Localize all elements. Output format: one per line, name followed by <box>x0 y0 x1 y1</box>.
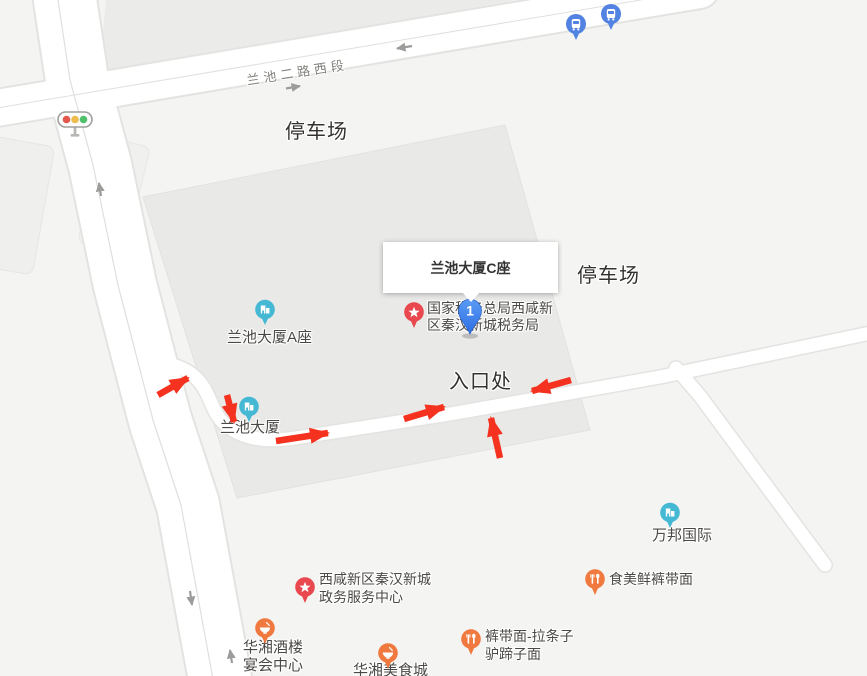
kudaimian-label[interactable]: 裤带面-拉条子 驴蹄子面 <box>485 627 574 663</box>
parking-label-top: 停车场 <box>285 120 348 144</box>
gov-center-label[interactable]: 西咸新区秦汉新城 政务服务中心 <box>319 570 431 606</box>
gov-center-label-line1: 西咸新区秦汉新城 <box>319 570 431 588</box>
shimei-fork-knife-pin-icon[interactable] <box>584 568 606 601</box>
tax-office-star-pin-icon[interactable] <box>403 301 425 334</box>
gov-center-label-line2: 政务服务中心 <box>319 588 431 606</box>
parcel-left <box>0 134 55 275</box>
bus-stop-icon[interactable] <box>565 13 587 46</box>
huaxiang-hotel-label-line2: 宴会中心 <box>243 657 303 675</box>
bus-stop-icon[interactable] <box>600 3 622 36</box>
traffic-light-icon <box>55 108 95 145</box>
popup-card[interactable]: 兰池大厦C座 <box>383 242 558 293</box>
marker-number: 1 <box>466 303 474 319</box>
parking-label-right: 停车场 <box>577 264 640 288</box>
base-map-layer <box>0 0 867 676</box>
kudaimian-fork-knife-pin-icon[interactable] <box>460 628 482 661</box>
huaxiang-hotel-bowl-pin-icon[interactable] <box>254 617 276 650</box>
popup-title: 兰池大厦C座 <box>430 258 510 278</box>
map-canvas[interactable]: 兰池二路西段 停车场 停车场 入口处 <box>0 0 867 676</box>
gov-center-star-pin-icon[interactable] <box>294 576 316 609</box>
tax-office-label[interactable]: 国家税务总局西咸新 区秦汉新城税务局 <box>427 300 553 334</box>
huaxiang-food-bowl-pin-icon[interactable] <box>377 642 399 675</box>
kudaimian-label-line2: 驴蹄子面 <box>485 645 574 663</box>
lanchi-a-label[interactable]: 兰池大厦A座 <box>227 329 312 347</box>
tax-office-label-line1: 国家税务总局西咸新 <box>427 300 553 317</box>
lanchi-a-building-pin-icon[interactable] <box>254 299 276 331</box>
tax-office-label-line2: 区秦汉新城税务局 <box>427 317 553 334</box>
kudaimian-label-line1: 裤带面-拉条子 <box>485 627 574 645</box>
destination-marker[interactable]: 1 <box>455 296 485 345</box>
wanbang-building-pin-icon[interactable] <box>659 502 681 534</box>
lanchi-building-pin-icon[interactable] <box>238 396 260 428</box>
entrance-label: 入口处 <box>449 370 512 394</box>
shimei-label[interactable]: 食美鲜裤带面 <box>609 571 693 588</box>
